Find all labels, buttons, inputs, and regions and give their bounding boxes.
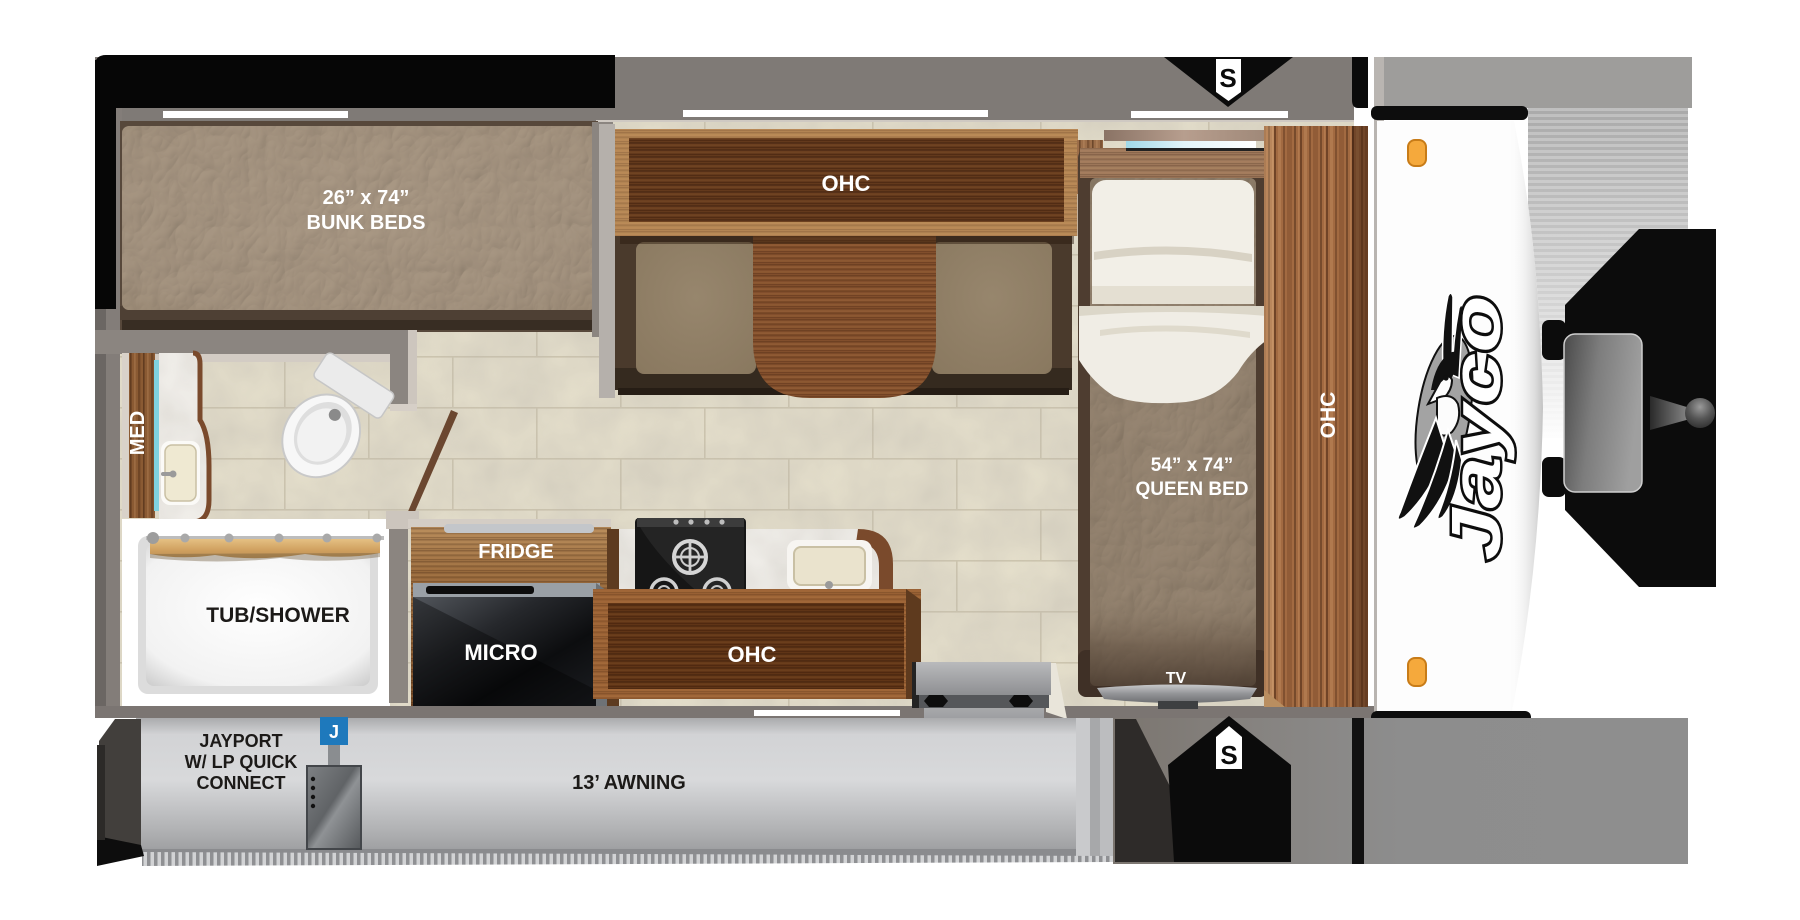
svg-text:MED: MED: [127, 411, 149, 455]
svg-text:BUNK BEDS: BUNK BEDS: [307, 212, 426, 234]
svg-text:OHC: OHC: [728, 642, 777, 667]
svg-text:S: S: [1219, 63, 1236, 93]
svg-text:JAYPORT: JAYPORT: [199, 731, 282, 751]
svg-text:TUB/SHOWER: TUB/SHOWER: [206, 604, 350, 627]
svg-text:FRIDGE: FRIDGE: [478, 541, 554, 563]
svg-text:OHC: OHC: [822, 171, 871, 196]
svg-text:TV: TV: [1166, 670, 1187, 687]
svg-text:Jayco: Jayco: [1437, 296, 1515, 561]
svg-text:OHC: OHC: [1317, 392, 1340, 439]
svg-text:CONNECT: CONNECT: [197, 773, 286, 793]
svg-text:J: J: [329, 722, 339, 742]
svg-text:13’ AWNING: 13’ AWNING: [572, 772, 686, 794]
svg-text:26” x 74”: 26” x 74”: [323, 187, 410, 209]
svg-text:MICRO: MICRO: [464, 640, 537, 665]
svg-text:S: S: [1220, 740, 1237, 770]
svg-text:54” x 74”: 54” x 74”: [1151, 455, 1233, 476]
svg-text:W/ LP QUICK: W/ LP QUICK: [185, 752, 298, 772]
svg-text:QUEEN BED: QUEEN BED: [1136, 479, 1249, 500]
